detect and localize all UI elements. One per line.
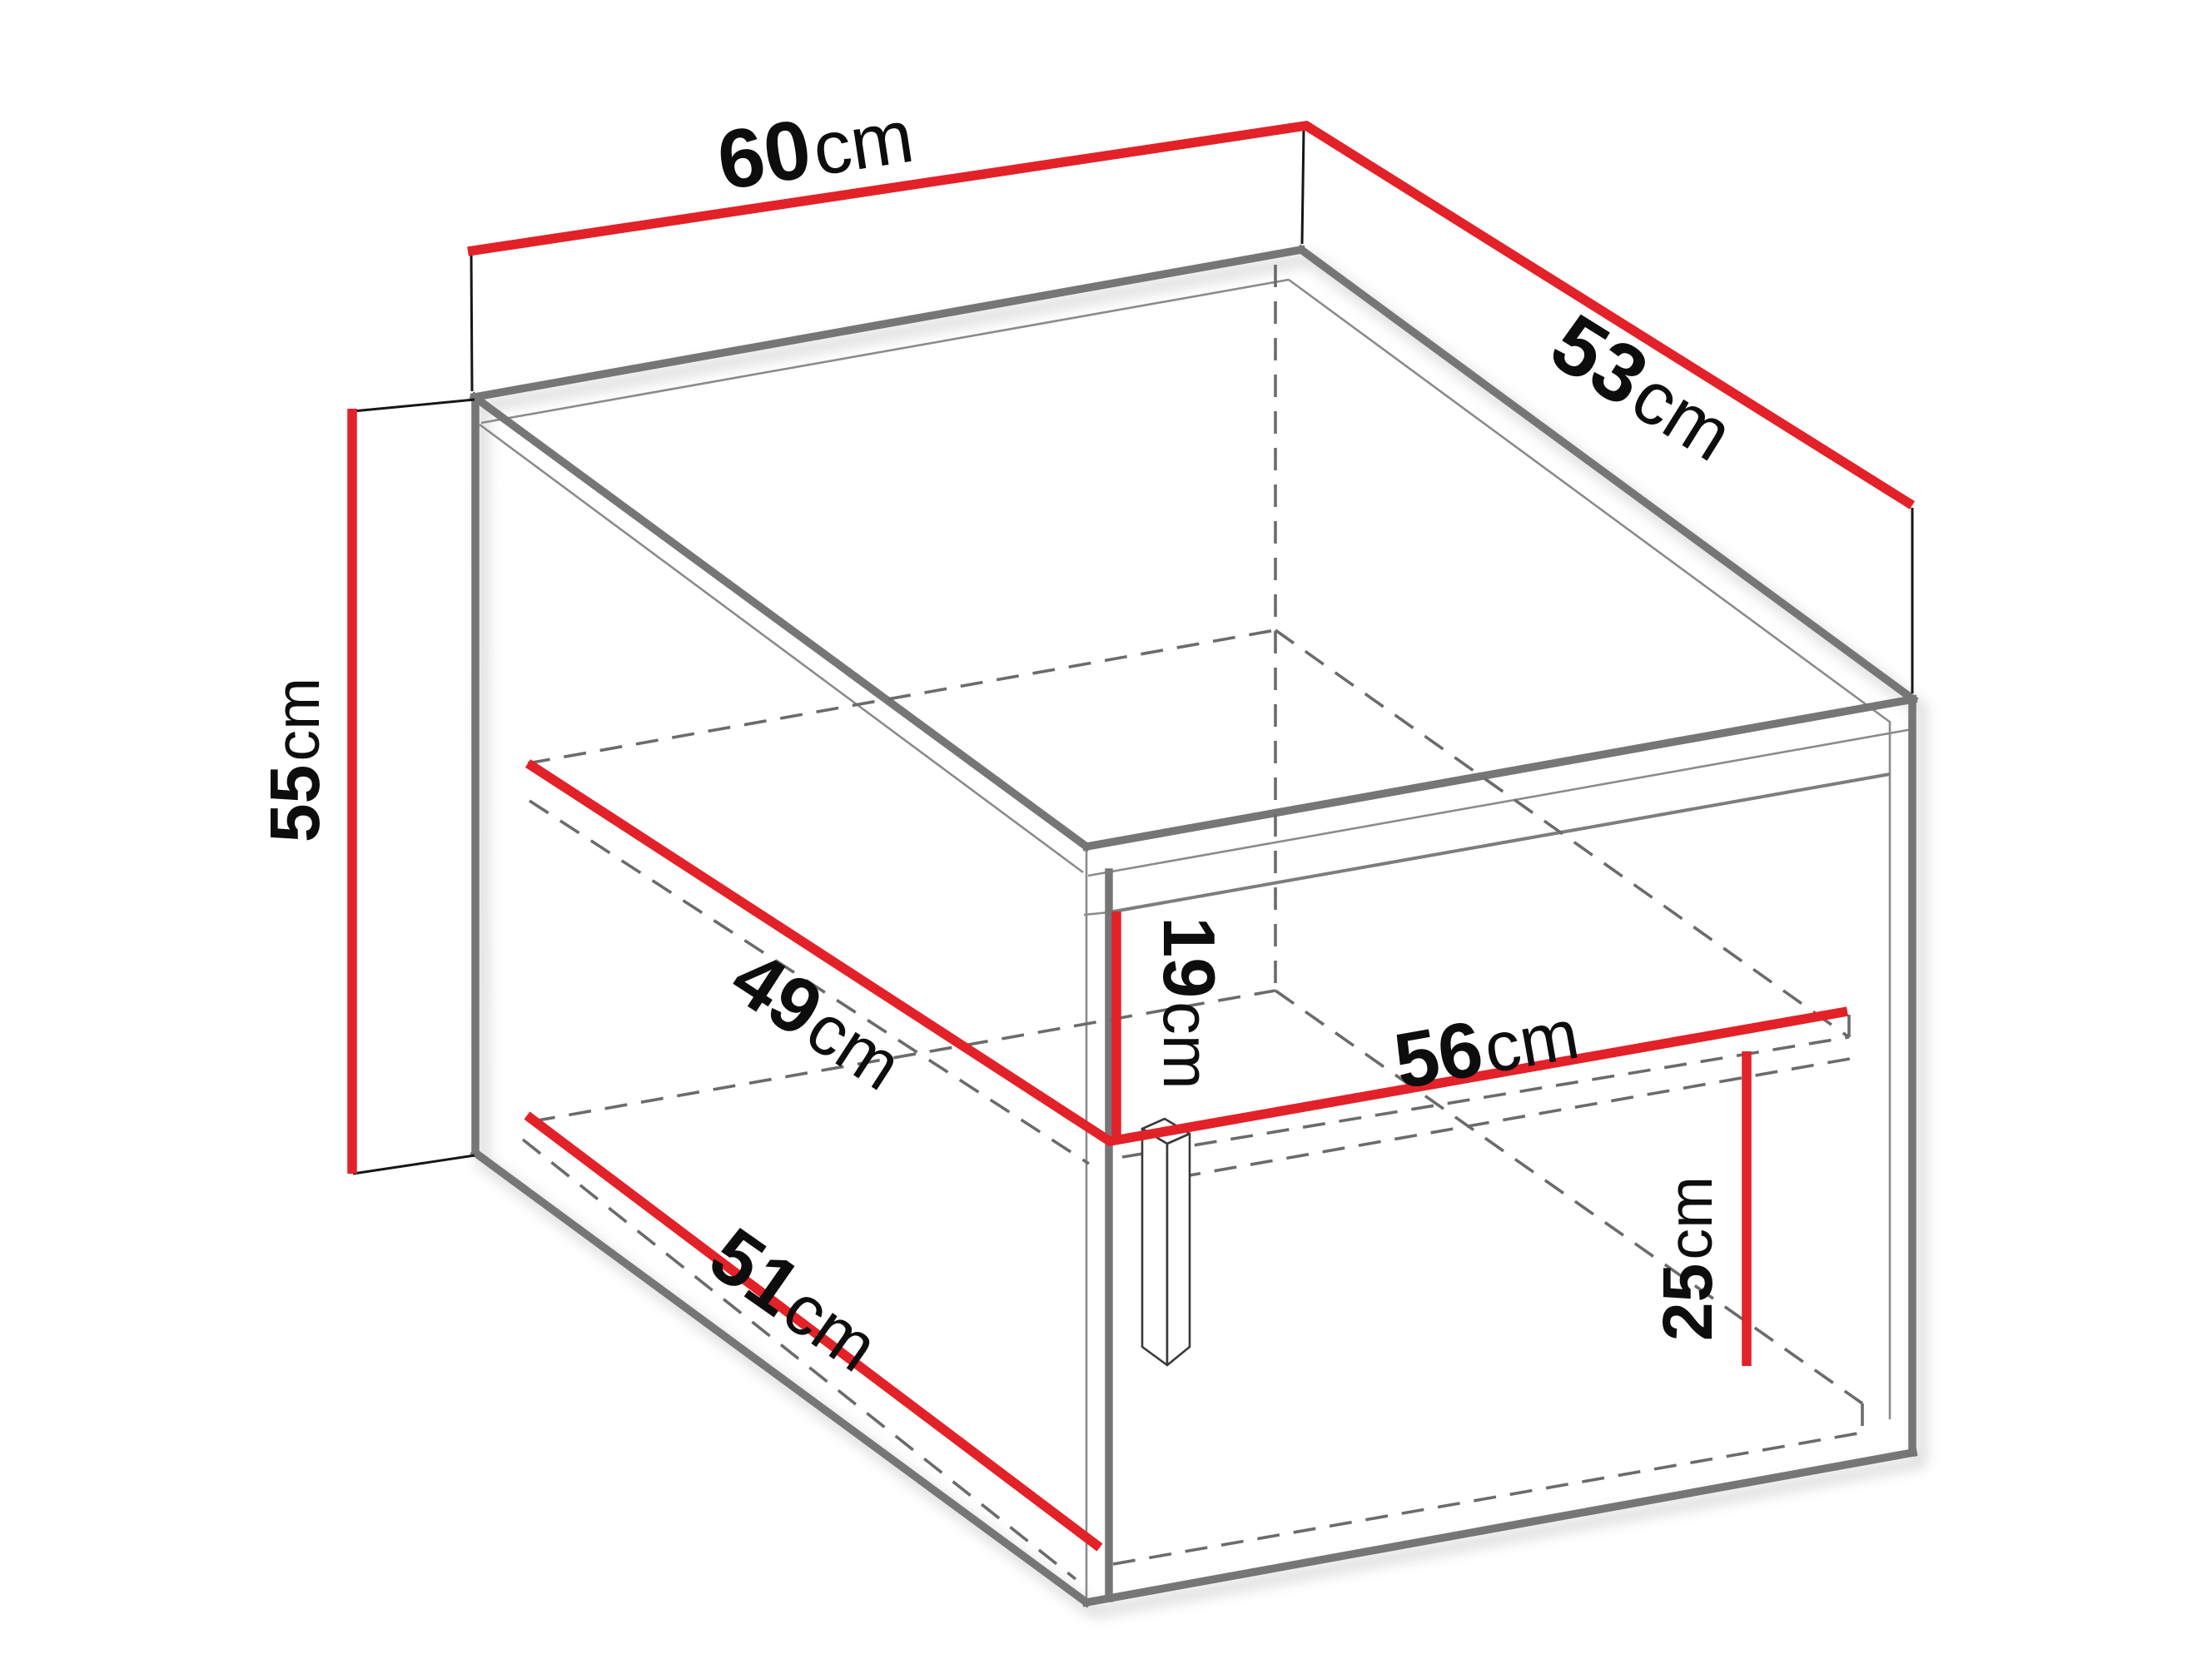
front-top-inner-edge: [1088, 729, 1912, 876]
ext-left-lower: [353, 1155, 475, 1174]
label-55cm: 55cm: [256, 678, 334, 842]
shelf-right-edge: [1275, 630, 1849, 1037]
diagram-page: 60cm 53cm 55cm 49cm 19cm 56cm 51cm 25cm: [0, 0, 2212, 1659]
top-back-left-inner-edge: [481, 280, 1289, 423]
label-25cm: 25cm: [1648, 1176, 1727, 1341]
label-56cm: 56cm: [1388, 987, 1584, 1105]
door-top-edge: [1109, 774, 1890, 912]
ext-back-top: [1302, 129, 1304, 244]
ext-left-upper: [353, 400, 475, 411]
door-handle: [1142, 1119, 1190, 1365]
front-top-edge: [1086, 699, 1913, 847]
ext-left-top: [471, 250, 472, 391]
top-front-left-inner-edge: [480, 425, 1083, 872]
shelf-back-edge: [528, 630, 1275, 763]
bottom-left-edge: [475, 1153, 1086, 1602]
bottom-front-edge: [1086, 1453, 1913, 1602]
bottom-thickness-edge: [523, 1140, 1076, 1579]
top-back-left-edge: [475, 250, 1301, 397]
label-19cm: 19cm: [1148, 916, 1230, 1089]
label-51cm: 51cm: [695, 1210, 897, 1388]
handle-front-face: [1142, 1129, 1167, 1365]
top-front-left-edge: [475, 397, 1086, 847]
cabinet-dimension-diagram: 60cm 53cm 55cm 49cm 19cm 56cm 51cm 25cm: [0, 0, 2212, 1659]
label-49cm: 49cm: [717, 933, 919, 1107]
handle-side-face: [1167, 1134, 1190, 1365]
